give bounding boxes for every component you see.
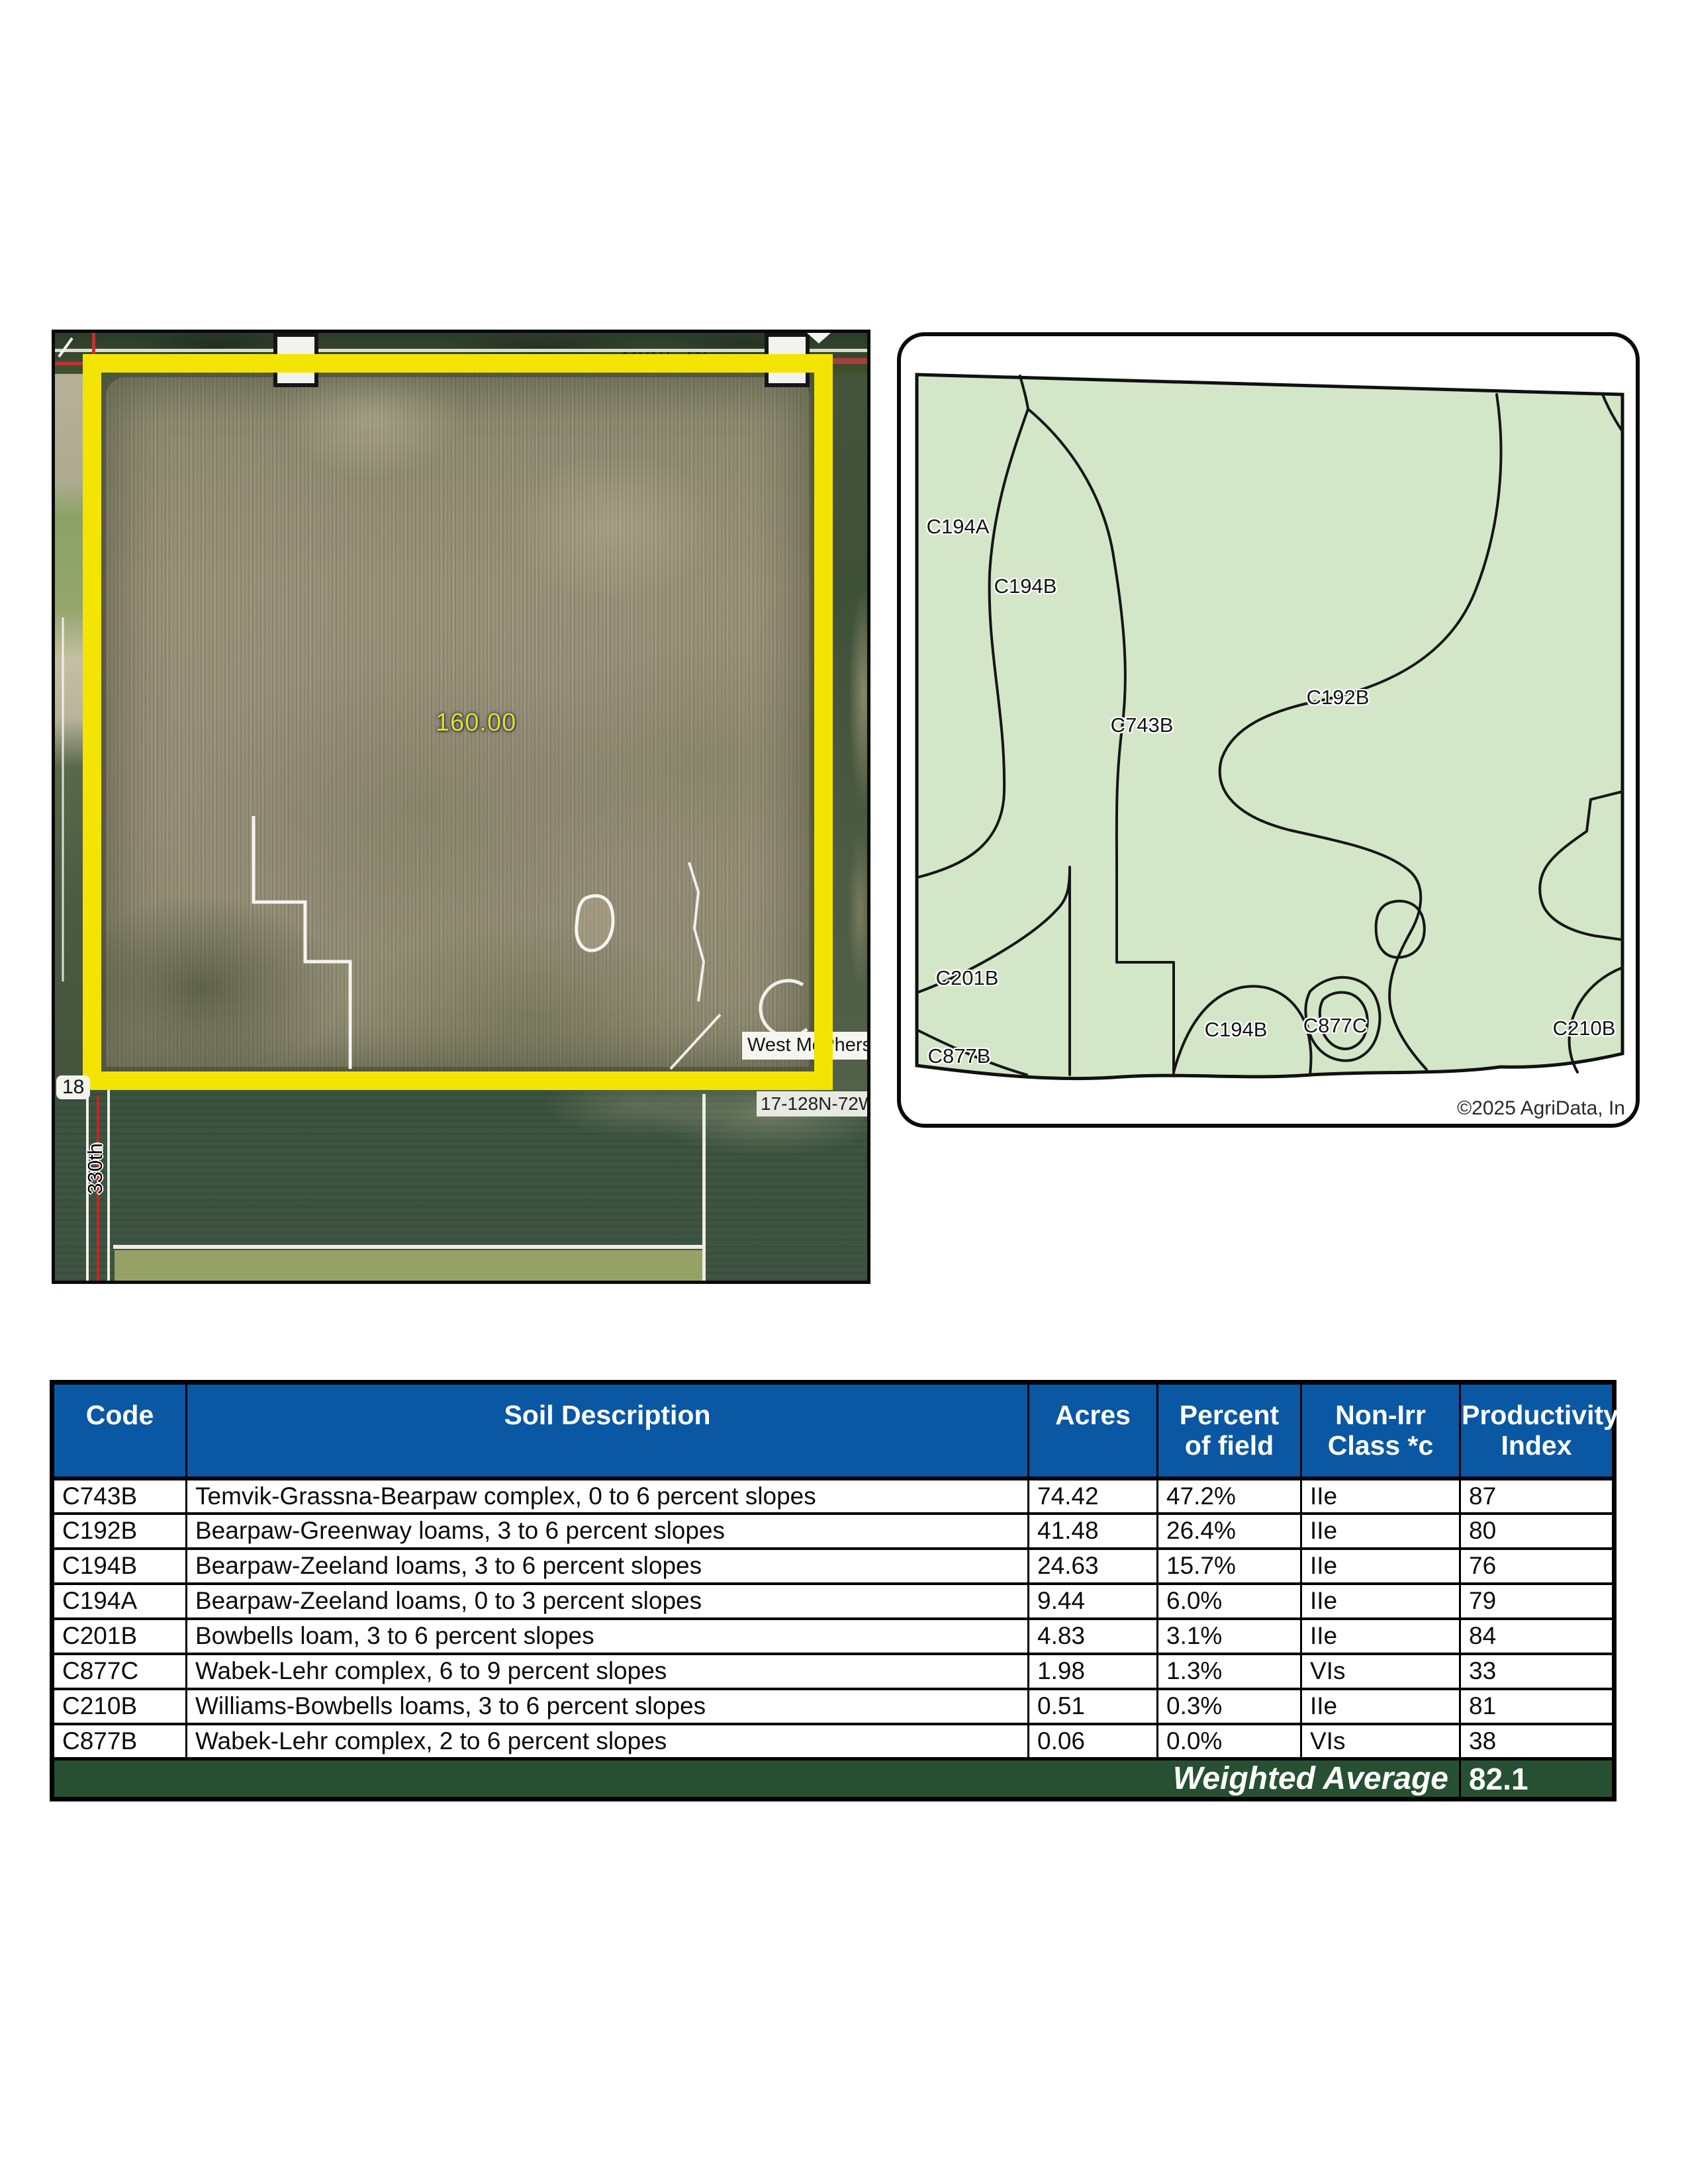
map-attribution: ©2025 AgriData, In	[1457, 1097, 1625, 1120]
soil-table: Code Soil Description Acres Percent of f…	[50, 1380, 1617, 1801]
table-row: C194ABearpaw-Zeeland loams, 0 to 3 perce…	[52, 1584, 1615, 1619]
header-non-irr-class: Non-Irr Class *c	[1301, 1383, 1460, 1479]
header-percent-of-field: Percent of field	[1158, 1383, 1301, 1479]
field-boundary-highlight	[83, 354, 833, 1090]
table-row: C743BTemvik-Grassna-Bearpaw complex, 0 t…	[52, 1479, 1615, 1514]
soil-boundaries-map	[914, 368, 1625, 1097]
soil-region-label: C194B	[994, 574, 1057, 598]
section-number-label: 18	[56, 1075, 90, 1099]
table-row: C192BBearpaw-Greenway loams, 3 to 6 perc…	[52, 1514, 1615, 1549]
weighted-average-value: 82.1	[1460, 1759, 1615, 1799]
table-row: C194BBearpaw-Zeeland loams, 3 to 6 perce…	[52, 1549, 1615, 1584]
header-code: Code	[52, 1383, 187, 1479]
soil-region-label: C877C	[1303, 1014, 1368, 1038]
soil-region-label: C194B	[1205, 1018, 1268, 1042]
soil-region-label: C192B	[1307, 686, 1370, 709]
road-label-330th: 330th	[83, 1143, 107, 1195]
table-row: C201BBowbells loam, 3 to 6 percent slope…	[52, 1619, 1615, 1654]
soil-region-label: C194A	[927, 515, 990, 539]
header-soil-description: Soil Description	[187, 1383, 1029, 1479]
weighted-average-row: Weighted Average 82.1	[52, 1759, 1615, 1799]
header-acres: Acres	[1029, 1383, 1158, 1479]
township-range-label: 17-128N-72W	[757, 1091, 870, 1116]
table-row: C210BWilliams-Bowbells loams, 3 to 6 per…	[52, 1689, 1615, 1724]
soil-region-label: C877B	[928, 1044, 991, 1068]
table-header-row: Code Soil Description Acres Percent of f…	[52, 1383, 1615, 1479]
soil-region-label: C743B	[1111, 713, 1174, 737]
aerial-map-panel: 400th St 160.00 West McPherson 17-128N-7…	[52, 330, 870, 1284]
arrow-marker-icon	[807, 333, 831, 343]
header-productivity-index: Productivity Index	[1460, 1383, 1615, 1479]
soil-map-panel: C194AC194BC743BC192BC201BC877BC194BC877C…	[897, 332, 1640, 1128]
weighted-average-label: Weighted Average	[52, 1759, 1460, 1799]
table-row: C877BWabek-Lehr complex, 2 to 6 percent …	[52, 1724, 1615, 1759]
soil-report-page: 400th St 160.00 West McPherson 17-128N-7…	[0, 0, 1688, 2184]
soil-region-label: C201B	[936, 966, 999, 990]
soil-region-label: C210B	[1553, 1017, 1616, 1040]
table-row: C877CWabek-Lehr complex, 6 to 9 percent …	[52, 1654, 1615, 1689]
